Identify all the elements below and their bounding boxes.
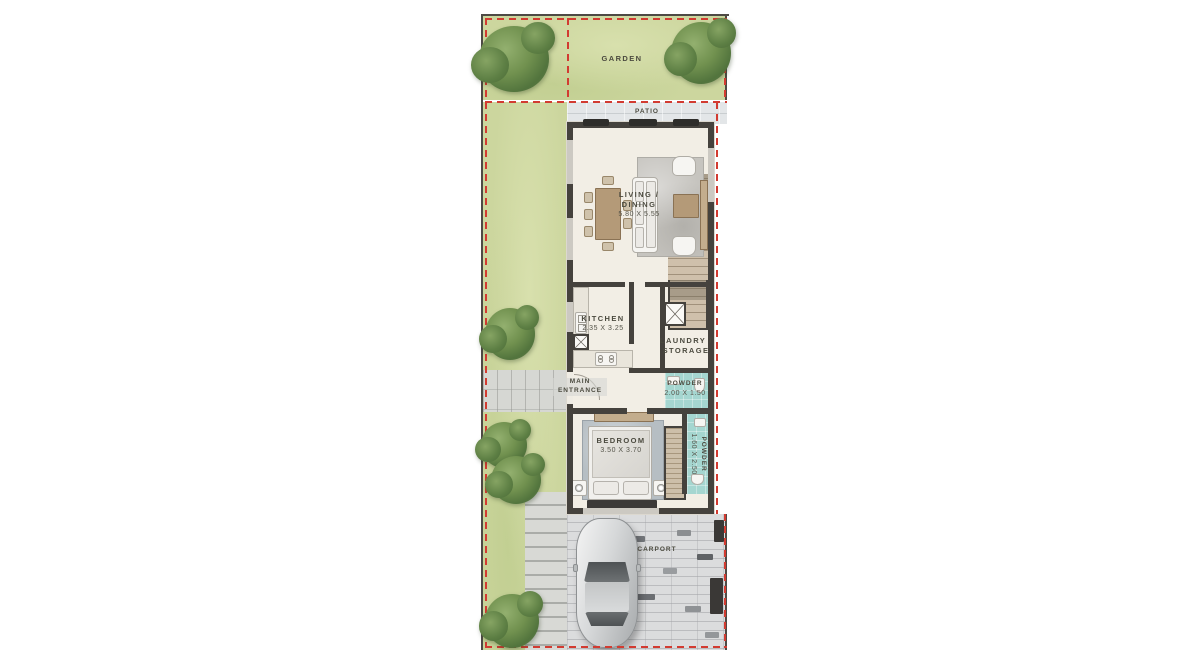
boundary-line-right-carport: [724, 514, 726, 648]
kitchen-fridge: [573, 334, 589, 350]
tree: [491, 456, 541, 504]
laundry-closet: [664, 302, 686, 326]
living-dining-label: LIVING / DINING 5.80 X 5.55: [608, 190, 670, 220]
car-roof: [585, 582, 629, 612]
bedroom-label: BEDROOM 3.50 X 3.70: [592, 436, 650, 456]
dining-chair: [584, 226, 593, 237]
car-windshield: [584, 562, 630, 582]
patio-boundary-line: [485, 101, 727, 103]
x-mark-icon: [666, 304, 684, 324]
armchair-bottom: [672, 236, 696, 256]
garden-label: GARDEN: [587, 54, 657, 64]
laundry-storage-label: LAUNDRY / STORAGE: [660, 336, 712, 356]
x-mark-icon: [575, 336, 587, 348]
dining-chair: [584, 209, 593, 220]
garden-divider-line: [567, 18, 569, 102]
nightstand-left: [571, 480, 587, 496]
coffee-table: [673, 194, 699, 218]
tree: [485, 308, 535, 360]
side-garden-strip: [483, 102, 567, 650]
dining-chair: [602, 242, 614, 251]
carport-label: CARPORT: [617, 546, 697, 555]
powder2-label: POWDER 1.60 X 2.50: [675, 422, 721, 486]
armchair-top: [672, 156, 696, 176]
building: LIVING / DINING 5.80 X 5.55 KITCHEN 2.35…: [567, 122, 714, 514]
boundary-post: [710, 578, 723, 614]
car: [576, 518, 638, 648]
tv-console: [700, 180, 708, 250]
tree: [485, 594, 539, 648]
tree: [479, 26, 549, 92]
powder1-label: POWDER 2.00 X 1.50: [661, 380, 709, 398]
boundary-line-top: [485, 18, 727, 20]
car-rear-window: [585, 612, 629, 626]
kitchen-cooktop: [595, 352, 617, 366]
tree: [671, 22, 731, 84]
kitchen-label: KITCHEN 2.35 X 3.25: [577, 314, 629, 334]
boundary-post: [714, 520, 724, 542]
floor-plan: GARDEN PATIO CARPORT: [481, 14, 729, 650]
boundary-line-right-building: [716, 102, 718, 514]
patio-label: PATIO: [607, 108, 687, 117]
dining-chair: [584, 192, 593, 203]
main-entrance-label: MAIN ENTRANCE: [553, 378, 607, 396]
dining-chair: [602, 176, 614, 185]
